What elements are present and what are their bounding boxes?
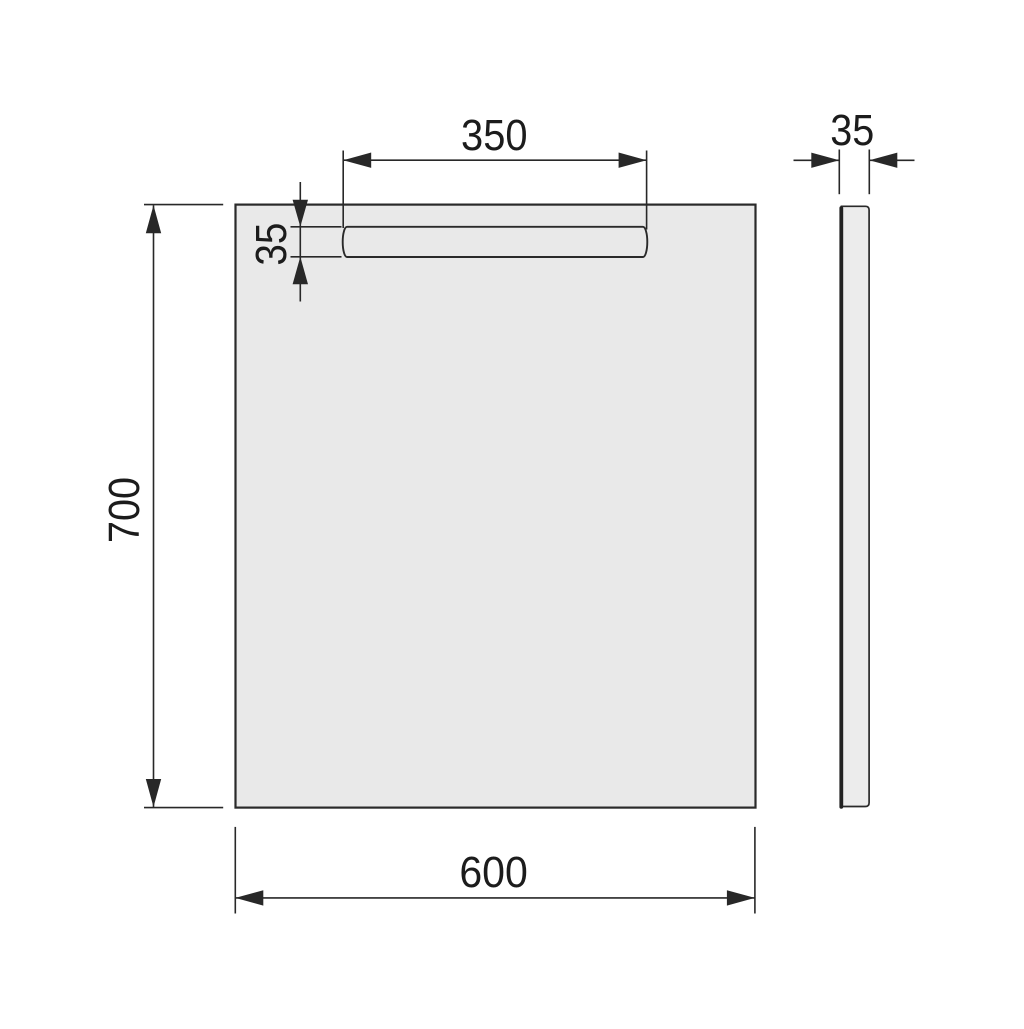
svg-text:700: 700: [101, 477, 149, 543]
svg-text:600: 600: [459, 849, 528, 897]
svg-text:350: 350: [461, 112, 528, 160]
svg-text:35: 35: [248, 223, 296, 266]
svg-text:35: 35: [830, 107, 874, 155]
